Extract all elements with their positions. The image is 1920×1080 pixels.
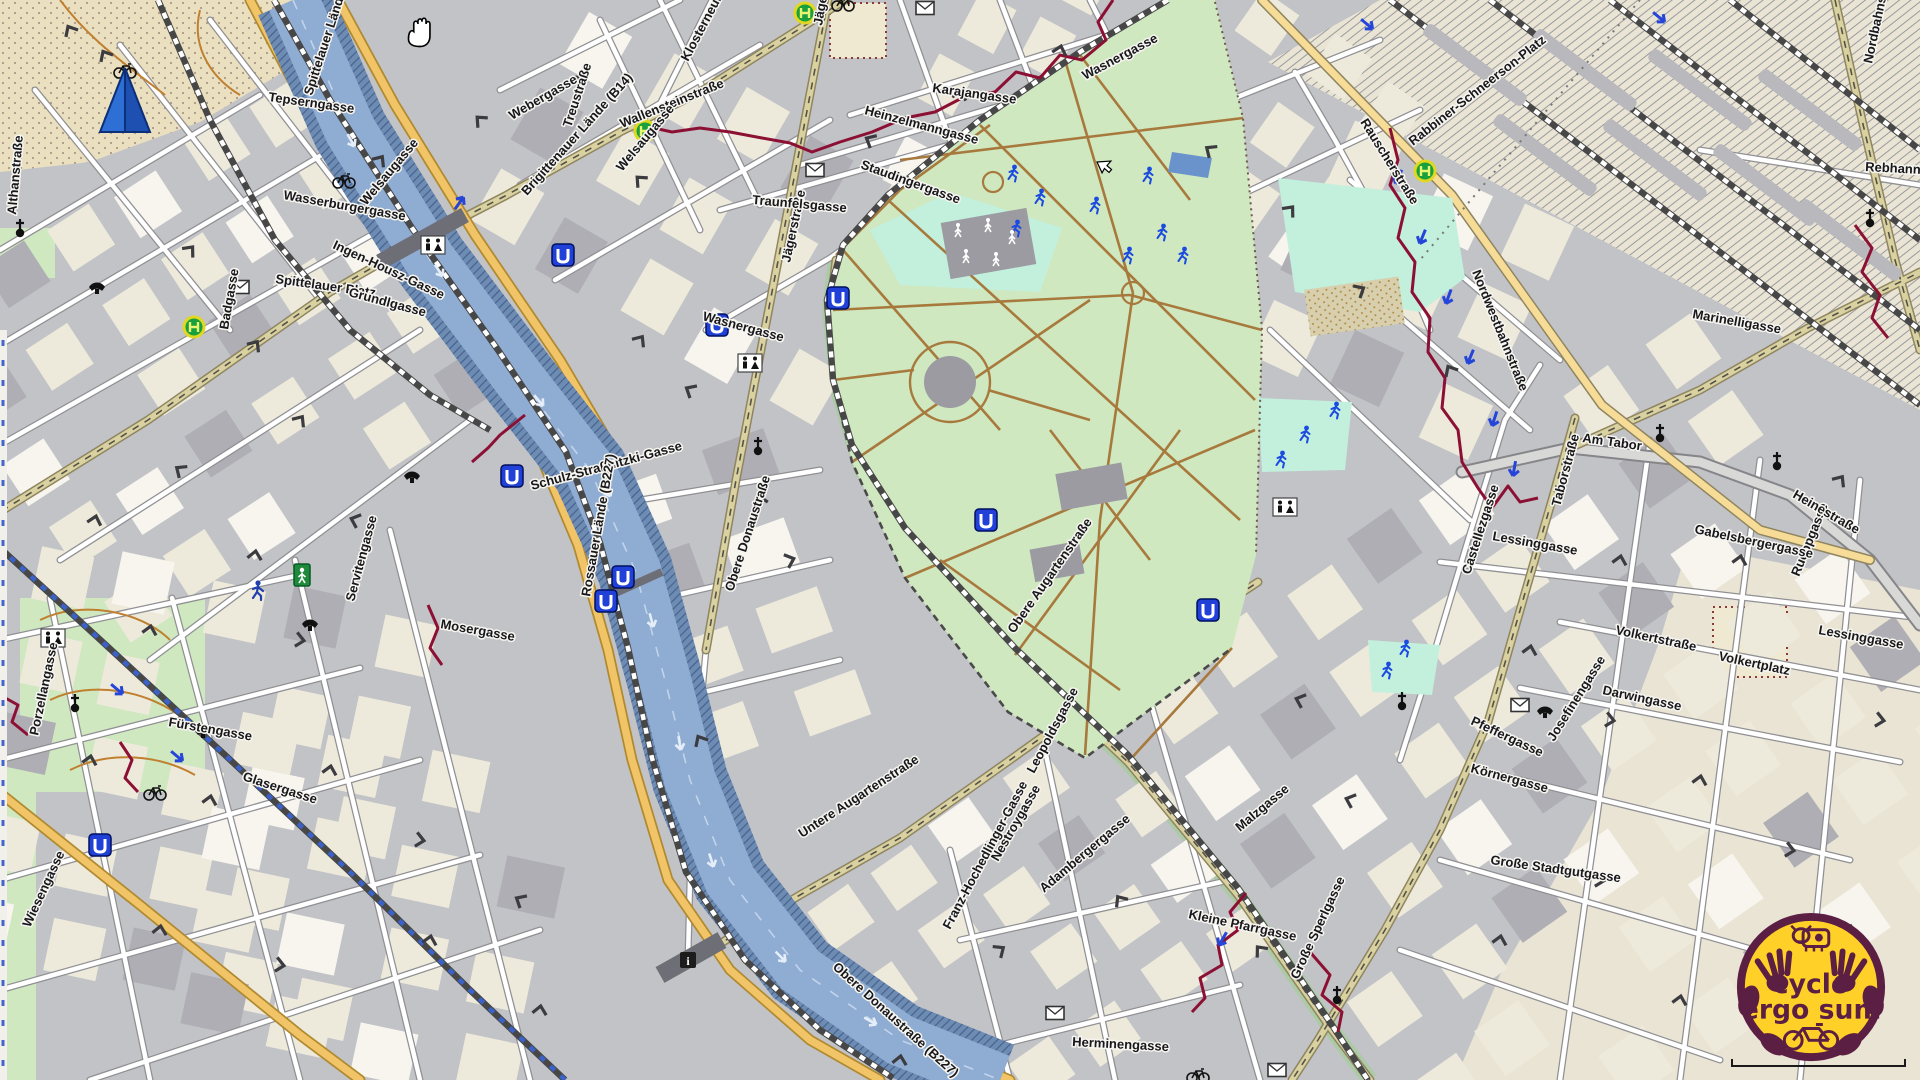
greensign-icon[interactable]	[294, 564, 310, 586]
u-icon[interactable]	[827, 287, 849, 309]
envelope-icon[interactable]	[1268, 1064, 1286, 1077]
u-icon[interactable]	[89, 834, 111, 856]
map-canvas[interactable]: i BadgasseAlthanstraßeTepserngasseWasser…	[0, 0, 1920, 1080]
envelope-icon[interactable]	[916, 2, 934, 15]
edge-path-strip	[0, 330, 7, 1080]
u-icon[interactable]	[501, 465, 523, 487]
wc-icon[interactable]	[738, 354, 762, 372]
u-icon[interactable]	[612, 566, 634, 588]
u-icon[interactable]	[595, 590, 617, 612]
cyclo-ergo-sum-logo: cyclo ergo sum	[1732, 908, 1890, 1066]
envelope-icon[interactable]	[806, 164, 824, 177]
u-icon[interactable]	[552, 244, 574, 266]
pharmacy-icon[interactable]	[1415, 161, 1435, 181]
map-viewport[interactable]: i BadgasseAlthanstraßeTepserngasseWasser…	[0, 0, 1920, 1080]
pharmacy-icon[interactable]	[184, 317, 204, 337]
info-icon[interactable]	[680, 952, 696, 968]
u-icon[interactable]	[975, 509, 997, 531]
wc-icon[interactable]	[1273, 498, 1297, 516]
envelope-icon[interactable]	[1511, 699, 1529, 712]
logo-line2: ergo sum	[1741, 995, 1882, 1026]
envelope-icon[interactable]	[1046, 1007, 1064, 1020]
wc-icon[interactable]	[421, 236, 445, 254]
u-icon[interactable]	[1197, 599, 1219, 621]
